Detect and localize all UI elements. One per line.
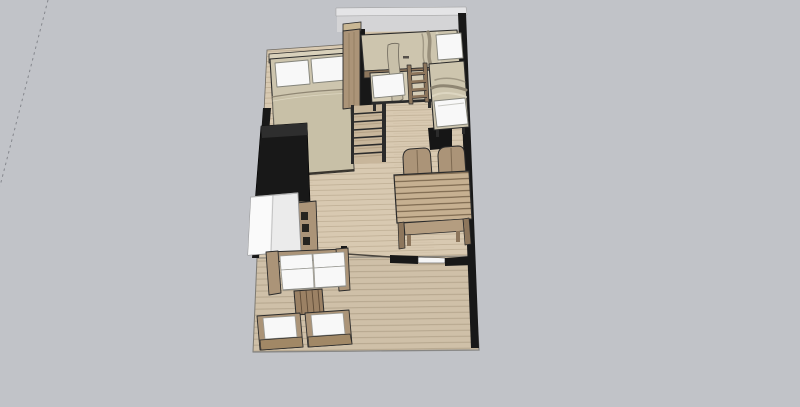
armchair-right[interactable]	[305, 310, 352, 347]
door-opening	[418, 257, 445, 263]
drawer-handle	[301, 212, 308, 220]
drawer-handle	[302, 224, 309, 232]
staircase[interactable]	[351, 103, 386, 164]
drawer-handle	[303, 237, 310, 245]
kitchen-counter[interactable]	[255, 123, 310, 203]
scene-canvas[interactable]	[0, 0, 800, 407]
armchair-left[interactable]	[257, 313, 303, 350]
wardrobe[interactable]	[343, 22, 361, 109]
blanket-button	[403, 56, 409, 59]
refrigerator[interactable]	[248, 193, 301, 255]
model-viewport[interactable]	[0, 0, 800, 407]
